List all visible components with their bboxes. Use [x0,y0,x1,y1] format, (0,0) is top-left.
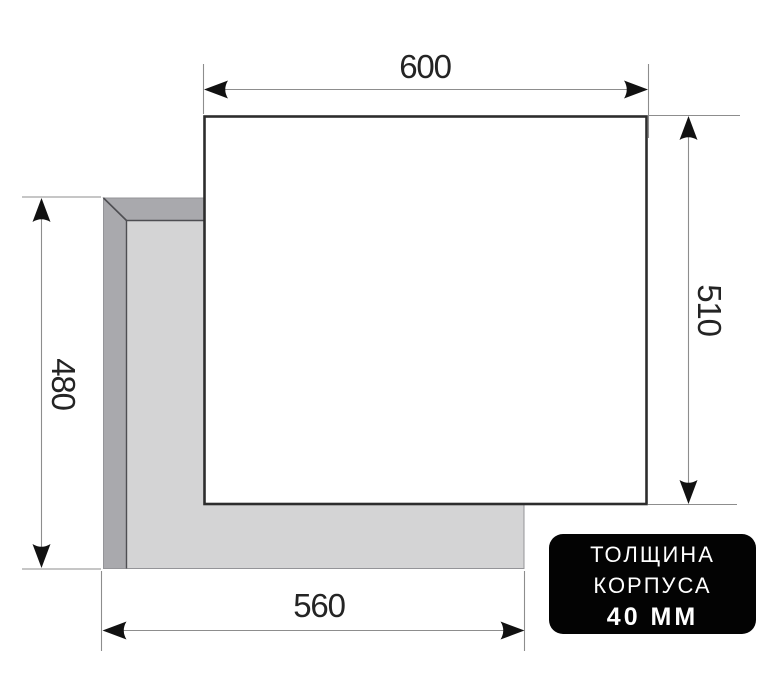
svg-text:560: 560 [293,587,345,624]
svg-text:КОРПУСА: КОРПУСА [593,573,711,598]
svg-text:510: 510 [691,284,728,336]
svg-text:600: 600 [399,48,451,85]
svg-text:480: 480 [45,358,82,410]
svg-text:ТОЛЩИНА: ТОЛЩИНА [590,542,715,567]
svg-text:40 ММ: 40 ММ [607,603,698,631]
